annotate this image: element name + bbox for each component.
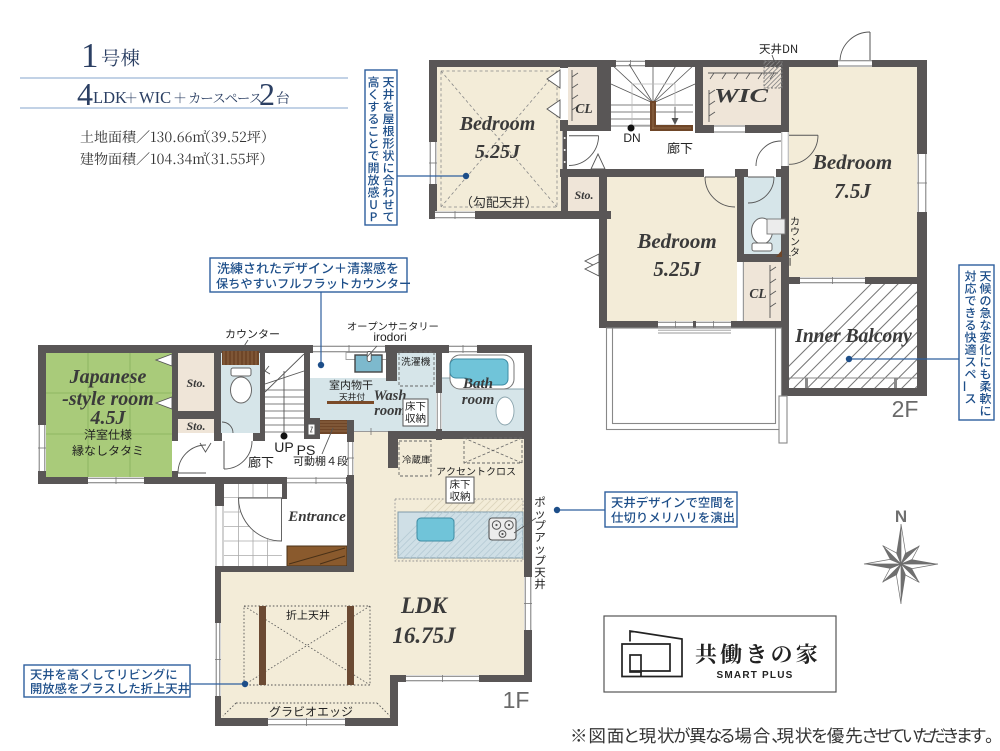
svg-text:PS: PS <box>297 442 316 458</box>
svg-text:irodori: irodori <box>373 330 406 344</box>
svg-text:16.75J: 16.75J <box>392 623 457 648</box>
svg-text:Inner Balcony: Inner Balcony <box>794 326 912 347</box>
svg-text:Bedroom: Bedroom <box>459 113 536 135</box>
svg-text:Wash: Wash <box>374 388 407 404</box>
svg-text:CL: CL <box>575 101 592 116</box>
svg-text:UP: UP <box>274 439 293 455</box>
svg-text:LDK: LDK <box>400 593 449 618</box>
svg-text:4: 4 <box>77 76 93 112</box>
svg-text:Japanese: Japanese <box>69 366 147 388</box>
svg-text:4.5J: 4.5J <box>90 407 127 429</box>
svg-text:WIC: WIC <box>714 85 769 107</box>
svg-text:WIC: WIC <box>139 88 171 107</box>
svg-text:1: 1 <box>81 36 99 75</box>
svg-text:5.25J: 5.25J <box>475 141 521 163</box>
svg-text:Bath: Bath <box>462 376 493 392</box>
svg-text:DN: DN <box>623 131 640 145</box>
svg-text:room: room <box>462 392 495 408</box>
svg-text:Sto.: Sto. <box>574 188 593 202</box>
svg-text:5.25J: 5.25J <box>653 257 702 281</box>
svg-text:2: 2 <box>259 76 275 112</box>
svg-text:2F: 2F <box>892 396 919 422</box>
svg-text:N: N <box>895 507 907 526</box>
svg-text:CL: CL <box>749 286 766 301</box>
svg-text:room: room <box>374 403 405 419</box>
svg-text:Bedroom: Bedroom <box>636 229 716 253</box>
svg-text:SMART PLUS: SMART PLUS <box>717 670 794 681</box>
svg-text:Sto.: Sto. <box>186 376 205 390</box>
svg-text:7.5J: 7.5J <box>834 179 872 203</box>
svg-text:Sto.: Sto. <box>186 419 205 433</box>
svg-text:Bedroom: Bedroom <box>812 150 892 174</box>
svg-text:LDK: LDK <box>93 88 127 107</box>
svg-text:Entrance: Entrance <box>287 509 346 525</box>
svg-text:1F: 1F <box>503 687 530 713</box>
